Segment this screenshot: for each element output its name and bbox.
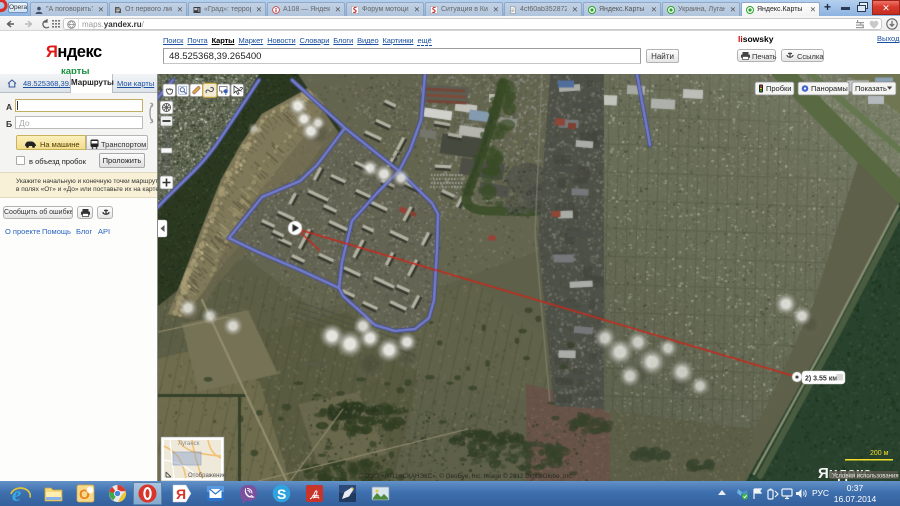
svg-text:Показать: Показать — [855, 84, 887, 93]
svg-text:?: ? — [239, 87, 243, 94]
svg-text:© ООО «ИТЦ «СКАНЭКС», © GeoEye: © ООО «ИТЦ «СКАНЭКС», © GeoEye, Inc. Ima… — [358, 472, 573, 480]
svg-text:Я: Я — [176, 486, 186, 502]
svg-text:S: S — [277, 486, 286, 502]
svg-text:Отображение: Отображение — [188, 473, 227, 479]
svg-text:Луганск: Луганск — [178, 441, 200, 447]
svg-text:Пробки: Пробки — [766, 84, 792, 93]
svg-text:200 м: 200 м — [870, 450, 889, 457]
svg-text:Условия использования: Условия использования — [832, 474, 899, 480]
svg-text:e: e — [12, 483, 21, 504]
svg-text:Яндекс: Яндекс — [304, 361, 327, 368]
svg-text:Панорамы: Панорамы — [811, 84, 848, 93]
svg-text:2) 3.55 км: 2) 3.55 км — [805, 376, 837, 383]
